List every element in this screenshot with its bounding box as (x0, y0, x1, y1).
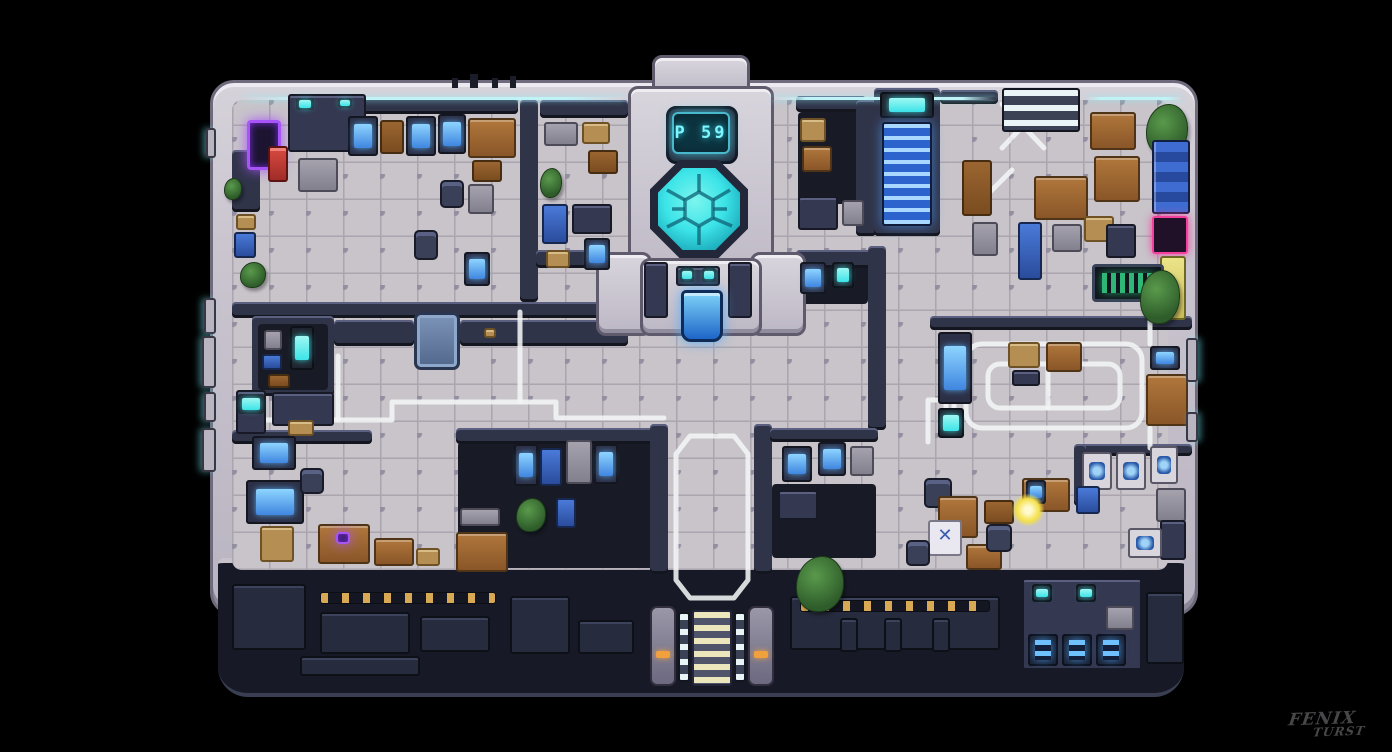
machine-screen (1032, 584, 1052, 602)
office-chair (414, 230, 438, 260)
potted-tree (796, 556, 844, 612)
wooden-desk (1094, 156, 1140, 202)
cargo-crate (546, 250, 570, 268)
supply-shelf (1152, 140, 1190, 214)
hull-module (1186, 338, 1198, 382)
storage-box (1052, 224, 1082, 252)
holo-display[interactable]: P 59 (672, 112, 730, 154)
light-orb (1012, 494, 1044, 526)
wooden-bench (472, 160, 502, 182)
office-chair (440, 180, 464, 208)
small-terminal[interactable] (938, 408, 964, 438)
antenna (510, 76, 516, 88)
equipment-cabinet (798, 196, 838, 230)
cargo-crate (288, 420, 314, 436)
coolant-vents (1062, 634, 1092, 666)
dining-chair (986, 524, 1012, 552)
energy-portal[interactable] (681, 290, 723, 342)
cargo-crate (416, 548, 440, 566)
storage-box (1012, 370, 1040, 386)
hull-module (206, 128, 216, 158)
potted-plant (540, 168, 562, 198)
signature-line2: TURST (1312, 726, 1366, 739)
wooden-desk (468, 118, 516, 158)
entrance-pillar (748, 606, 774, 686)
antenna (492, 78, 498, 88)
blue-locker (234, 232, 256, 258)
support-column (932, 618, 950, 652)
cabinet-screen (338, 98, 352, 108)
potted-plant (240, 262, 266, 288)
wooden-desk (1090, 112, 1136, 150)
kiosk-screen (238, 394, 264, 414)
wooden-shelf (962, 160, 992, 216)
wooden-table (1034, 176, 1088, 220)
work-table (298, 158, 338, 192)
hull-module (202, 428, 216, 472)
antenna (470, 74, 478, 88)
machinery-block (300, 656, 420, 676)
blue-locker (542, 204, 568, 244)
blue-locker (1076, 486, 1100, 514)
computer-desk[interactable] (1150, 346, 1180, 370)
computer-desk[interactable] (584, 238, 610, 270)
hull-module (1186, 412, 1198, 442)
console-wing (728, 262, 752, 318)
laundry-sink (1128, 528, 1162, 558)
cargo-crate (236, 214, 256, 230)
storage-box (850, 446, 874, 476)
cargo-crate (582, 122, 610, 144)
artist-signature: FENIX TURST (1286, 711, 1368, 740)
server-rack (566, 440, 592, 484)
support-column (884, 618, 902, 652)
cabinet-screen (296, 98, 314, 110)
stairwell-console (880, 92, 934, 118)
office-chair (300, 468, 324, 494)
pink-neon-sign (1152, 216, 1188, 254)
wooden-table (1046, 342, 1082, 372)
washing-machine[interactable] (1116, 452, 1146, 490)
machine-hatch (1106, 606, 1134, 630)
blue-terminal (556, 498, 576, 528)
counter-item (484, 328, 496, 338)
storage-box (842, 200, 864, 226)
server-rack (594, 444, 618, 484)
red-vending-machine[interactable] (268, 146, 288, 182)
machinery-block (420, 616, 490, 652)
toilet[interactable] (264, 330, 282, 350)
console-wing (644, 262, 668, 318)
storage-box (460, 508, 500, 526)
lab-machine (260, 526, 294, 562)
recycle-bin (262, 354, 282, 370)
storage-box (544, 122, 578, 146)
machine-screen (1076, 584, 1096, 602)
computer-desk[interactable] (406, 116, 436, 156)
entrance-stairs[interactable] (692, 610, 732, 686)
blue-locker (1018, 222, 1042, 280)
coolant-vents (1096, 634, 1126, 666)
console-screen (702, 268, 716, 282)
server-rack (540, 448, 562, 486)
machinery-block (578, 620, 634, 654)
computer-desk[interactable] (818, 442, 846, 476)
marked-table (928, 520, 962, 556)
washing-machine[interactable] (1150, 446, 1178, 484)
hull-module (202, 336, 216, 388)
wooden-table (374, 538, 414, 566)
computer-desk[interactable] (252, 436, 296, 470)
hull-module (204, 392, 216, 422)
washing-machine[interactable] (1082, 452, 1112, 490)
game-map[interactable]: P 59 (0, 0, 1392, 752)
wooden-cabinet (588, 150, 618, 174)
entrance-side-steps (734, 612, 746, 682)
hull-module (204, 298, 216, 334)
wooden-box (268, 374, 290, 388)
equipment-cabinet (1106, 224, 1136, 258)
storage-box (468, 184, 494, 214)
potted-plant (224, 178, 242, 200)
antenna (452, 78, 458, 88)
computer-desk[interactable] (438, 114, 466, 154)
door-panel[interactable] (414, 312, 460, 370)
machinery-block (232, 584, 306, 650)
wooden-desk (318, 524, 370, 564)
wooden-cabinet (380, 120, 404, 154)
equipment-cabinet (572, 204, 612, 234)
info-kiosk[interactable] (938, 332, 972, 404)
wooden-cabinet (802, 146, 832, 172)
roof-glow-strip (1086, 97, 1182, 100)
blue-staircase[interactable] (882, 122, 932, 226)
equipment-cabinet (778, 490, 818, 520)
large-monitor-desk[interactable] (246, 480, 304, 524)
machinery-block (510, 596, 570, 654)
utility-machine (1156, 488, 1186, 522)
computer-desk[interactable] (800, 262, 826, 294)
cargo-crate (1008, 342, 1040, 368)
cargo-crate (800, 118, 826, 142)
entrance-pillar (650, 606, 676, 686)
monitor-panel (832, 262, 854, 288)
vent-strip (320, 592, 496, 604)
step-ladder (972, 222, 998, 256)
dining-chair (906, 540, 930, 566)
wooden-desk (1146, 374, 1188, 426)
lit-vending-machine[interactable] (290, 326, 314, 370)
coolant-vents (1028, 634, 1058, 666)
machinery-block (1146, 592, 1184, 664)
potted-tree (1140, 270, 1180, 324)
entrance-side-steps (678, 612, 690, 682)
wooden-desk (456, 532, 508, 572)
utility-fixture (1160, 520, 1186, 560)
potted-plant (516, 498, 546, 532)
machinery-block (320, 612, 410, 654)
purple-gadget (336, 532, 350, 544)
console-screen (680, 268, 694, 282)
north-exit-grate[interactable] (1002, 88, 1080, 132)
dining-table (984, 500, 1014, 524)
support-column (840, 618, 858, 652)
computer-desk[interactable] (348, 116, 378, 156)
terminal-kiosk[interactable] (464, 252, 490, 286)
server-rack (514, 444, 538, 486)
computer-desk[interactable] (782, 446, 812, 482)
